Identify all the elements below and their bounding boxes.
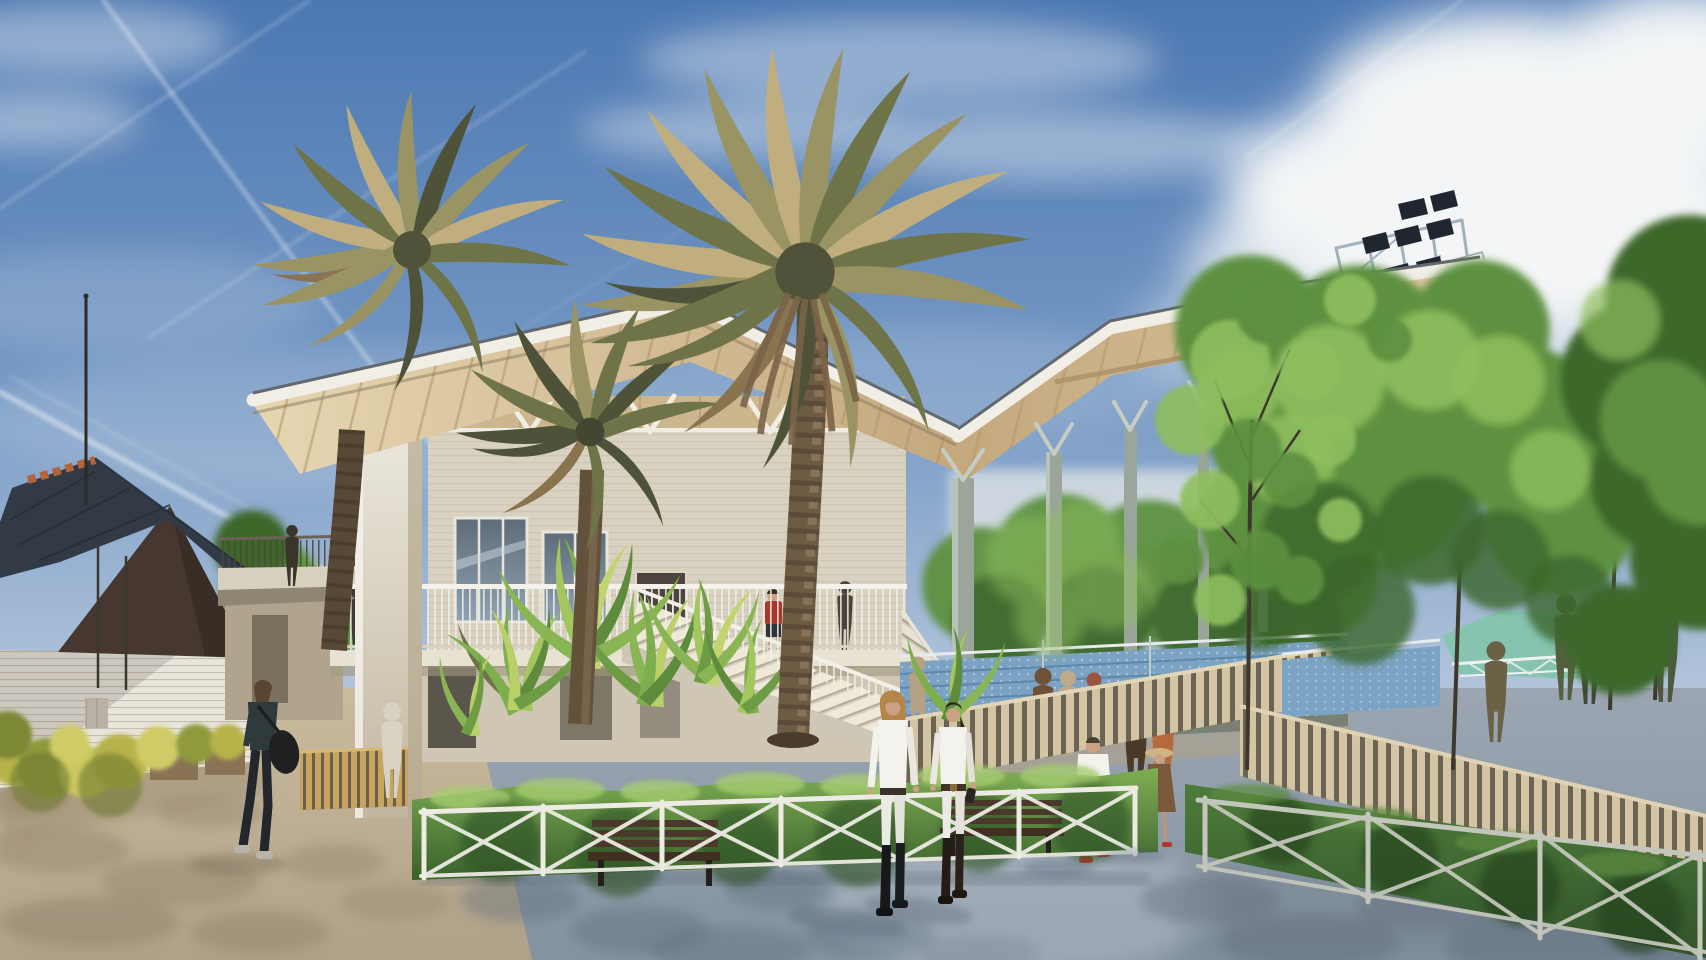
belt xyxy=(880,788,906,795)
scene-svg xyxy=(0,0,1706,960)
white-polo xyxy=(939,727,967,787)
architectural-rendering-canvas xyxy=(0,0,1706,960)
white-shirt xyxy=(878,720,908,790)
